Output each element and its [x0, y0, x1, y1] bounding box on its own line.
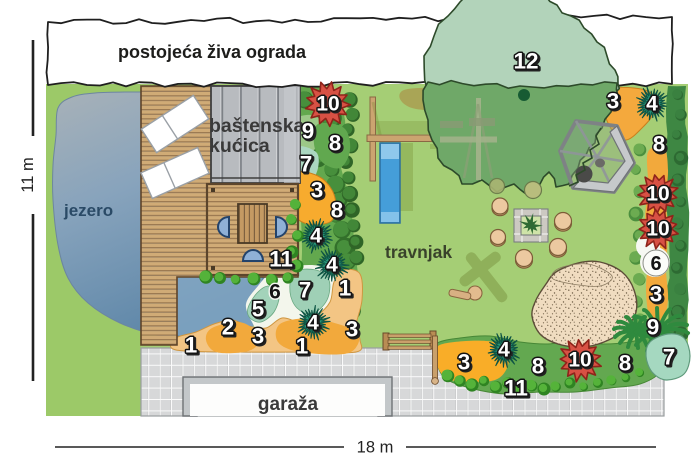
- svg-text:travnjak: travnjak: [385, 242, 452, 262]
- svg-text:8: 8: [653, 132, 666, 157]
- svg-text:10: 10: [646, 218, 669, 241]
- svg-text:3: 3: [458, 350, 471, 375]
- svg-text:4: 4: [498, 339, 510, 362]
- svg-text:11 m: 11 m: [19, 157, 37, 192]
- svg-text:10: 10: [646, 183, 669, 206]
- svg-text:3: 3: [311, 178, 324, 203]
- svg-text:baštenska: baštenska: [209, 115, 305, 137]
- svg-text:8: 8: [329, 131, 342, 156]
- svg-text:9: 9: [302, 119, 315, 144]
- svg-text:1: 1: [296, 334, 309, 359]
- svg-text:8: 8: [532, 354, 545, 379]
- svg-text:3: 3: [346, 317, 359, 342]
- svg-text:7: 7: [299, 278, 312, 303]
- svg-text:1: 1: [185, 333, 198, 358]
- svg-text:kućica: kućica: [209, 135, 270, 157]
- svg-text:10: 10: [568, 349, 591, 372]
- svg-text:7: 7: [300, 152, 313, 177]
- svg-text:jezero: jezero: [63, 201, 113, 220]
- svg-text:9: 9: [647, 315, 660, 340]
- svg-text:12: 12: [513, 49, 538, 74]
- svg-text:3: 3: [607, 89, 620, 114]
- svg-text:8: 8: [619, 351, 632, 376]
- svg-text:garaža: garaža: [258, 394, 319, 415]
- svg-text:1: 1: [339, 276, 352, 301]
- svg-text:7: 7: [663, 345, 676, 370]
- svg-text:4: 4: [310, 225, 322, 248]
- svg-text:5: 5: [252, 297, 265, 322]
- svg-text:18 m: 18 m: [357, 439, 394, 457]
- svg-text:4: 4: [646, 93, 658, 116]
- svg-text:2: 2: [222, 315, 235, 340]
- svg-text:11: 11: [504, 376, 528, 401]
- svg-text:11: 11: [269, 247, 293, 272]
- svg-text:4: 4: [326, 254, 338, 277]
- svg-text:10: 10: [316, 93, 339, 116]
- svg-text:3: 3: [252, 324, 265, 349]
- svg-text:4: 4: [307, 312, 319, 335]
- svg-text:postojeća živa ograda: postojeća živa ograda: [118, 42, 307, 62]
- svg-text:6: 6: [650, 253, 661, 275]
- svg-text:6: 6: [269, 281, 281, 304]
- svg-text:3: 3: [650, 282, 663, 307]
- svg-text:8: 8: [331, 198, 344, 223]
